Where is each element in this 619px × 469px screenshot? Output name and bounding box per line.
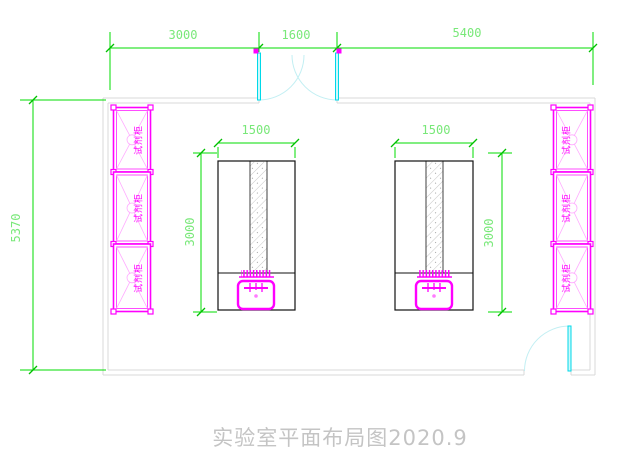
- dim-text-top-1600: 1600: [282, 28, 311, 42]
- cabinet-label: 试剂柜: [132, 193, 145, 223]
- plan-title: 实验室平面布局图2020.9: [212, 422, 467, 452]
- dim-text-top-3000: 3000: [169, 28, 198, 42]
- dim-text-bench-right-depth: 3000: [482, 219, 496, 248]
- door-jamb-mark: [254, 49, 259, 54]
- bottom-door-symbol: [525, 326, 572, 371]
- dim-text-bench-right-width: 1500: [422, 123, 451, 137]
- walls: [103, 98, 595, 375]
- dim-text-bench-left-width: 1500: [242, 123, 271, 137]
- double-door-symbol: [254, 49, 342, 101]
- sink-left-symbol: [238, 270, 274, 309]
- door-jamb-mark: [337, 49, 342, 54]
- cabinet-label: 试剂柜: [132, 263, 145, 293]
- sink-right-symbol: [416, 270, 452, 309]
- dim-text-bench-left-depth: 3000: [183, 218, 197, 247]
- cabinet-label: 试剂柜: [560, 193, 573, 223]
- plan-drawing: [0, 0, 619, 469]
- dim-text-left-5370: 5370: [9, 214, 23, 243]
- cabinet-label: 试剂柜: [560, 263, 573, 293]
- floor-plan-canvas: 3000 1600 5400 5370 1500 3000 1500 3000 …: [0, 0, 619, 469]
- dim-text-top-5400: 5400: [453, 26, 482, 40]
- cabinet-label: 试剂柜: [560, 125, 573, 155]
- dimension-lines: [20, 32, 593, 370]
- cabinet-label: 试剂柜: [132, 125, 145, 155]
